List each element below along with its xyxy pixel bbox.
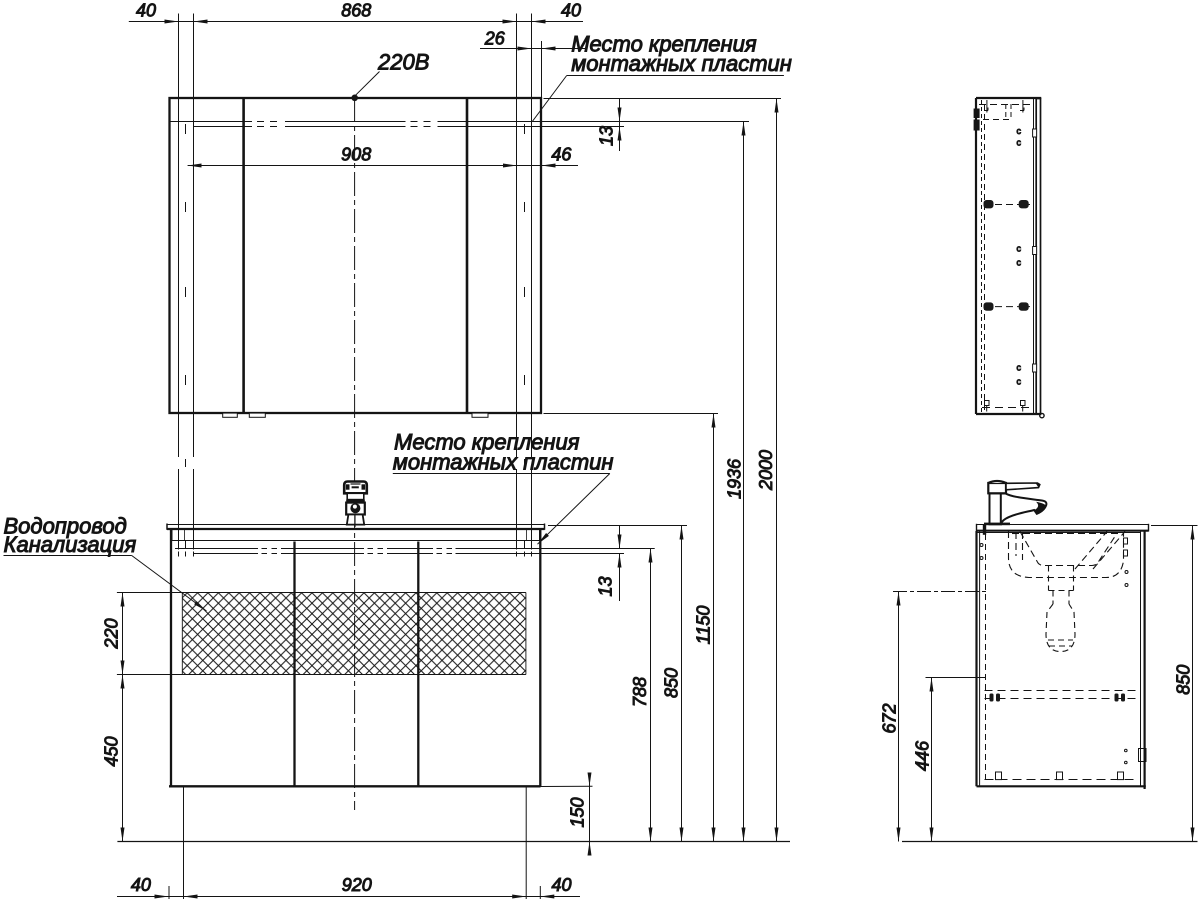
svg-text:c: c xyxy=(1017,244,1022,254)
svg-text:850: 850 xyxy=(1174,665,1194,695)
svg-text:446: 446 xyxy=(913,740,933,771)
svg-text:40: 40 xyxy=(136,1,156,21)
svg-text:1936: 1936 xyxy=(725,458,745,499)
svg-text:672: 672 xyxy=(880,703,900,733)
svg-text:13: 13 xyxy=(596,576,616,596)
svg-text:c: c xyxy=(1017,126,1022,136)
svg-text:450: 450 xyxy=(102,736,122,766)
svg-text:13: 13 xyxy=(597,126,617,146)
svg-text:c: c xyxy=(1017,377,1022,387)
svg-text:40: 40 xyxy=(131,875,151,895)
svg-text:868: 868 xyxy=(341,1,371,21)
svg-text:Канализация: Канализация xyxy=(4,532,137,557)
svg-text:монтажных пластин: монтажных пластин xyxy=(571,51,792,76)
svg-text:920: 920 xyxy=(342,875,372,895)
svg-text:220: 220 xyxy=(102,618,122,649)
svg-text:788: 788 xyxy=(630,677,650,707)
svg-text:26: 26 xyxy=(484,28,506,48)
svg-text:монтажных пластин: монтажных пластин xyxy=(393,450,614,475)
svg-text:850: 850 xyxy=(662,668,682,698)
svg-text:46: 46 xyxy=(551,145,572,165)
svg-text:908: 908 xyxy=(341,145,371,165)
svg-text:1150: 1150 xyxy=(694,606,714,645)
svg-text:c: c xyxy=(1017,258,1022,268)
svg-text:c: c xyxy=(1017,138,1022,148)
svg-text:150: 150 xyxy=(568,797,588,827)
svg-text:c: c xyxy=(1017,363,1022,373)
svg-text:40: 40 xyxy=(561,1,581,21)
svg-text:220В: 220В xyxy=(377,50,429,75)
svg-text:2000: 2000 xyxy=(756,450,776,491)
svg-text:40: 40 xyxy=(551,875,571,895)
